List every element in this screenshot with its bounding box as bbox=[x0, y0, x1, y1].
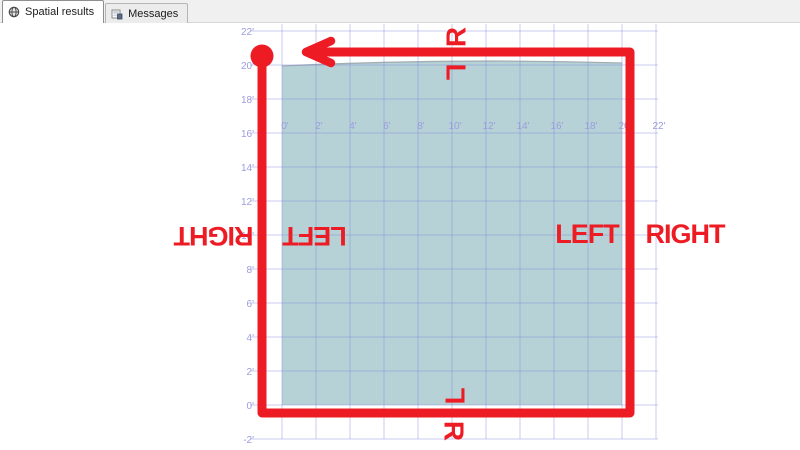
x-axis-tick-label: 2' bbox=[315, 121, 323, 132]
start-dot-icon bbox=[251, 45, 274, 68]
y-axis-tick-label: -2' bbox=[243, 435, 254, 445]
y-axis-tick-label: 6' bbox=[247, 299, 255, 310]
x-axis-tick-label: 6' bbox=[383, 121, 391, 132]
path-label-left-outside: RIGHT bbox=[173, 221, 254, 251]
x-axis-tick-label: 18' bbox=[584, 121, 597, 132]
tab-spatial-results[interactable]: Spatial results bbox=[2, 0, 104, 23]
x-axis-tick-label: 4' bbox=[349, 121, 357, 132]
path-label-top-inside: L bbox=[441, 63, 472, 80]
x-axis-tick-label: 8' bbox=[417, 121, 425, 132]
spatial-plot: 22' 20' 18' 16' 14' 12' 10' 8' 6' 4' 2' … bbox=[0, 23, 800, 445]
x-axis-tick-label: 16' bbox=[550, 121, 563, 132]
path-label-right-inside: LEFT bbox=[555, 219, 620, 249]
y-axis-tick-label: 0' bbox=[247, 401, 255, 412]
y-axis-tick-label: 18' bbox=[241, 95, 254, 106]
spatial-results-canvas: 22' 20' 18' 16' 14' 12' 10' 8' 6' 4' 2' … bbox=[0, 23, 800, 445]
x-axis-tick-label: 0' bbox=[281, 121, 289, 132]
y-axis-tick-label: 20' bbox=[241, 61, 254, 72]
path-label-right-outside: RIGHT bbox=[646, 219, 727, 249]
tab-label: Messages bbox=[128, 8, 178, 20]
messages-icon bbox=[111, 8, 123, 20]
y-axis-tick-label: 14' bbox=[241, 163, 254, 174]
x-axis-tick-label: 10' bbox=[448, 121, 461, 132]
y-axis-tick-label: 8' bbox=[247, 265, 255, 276]
globe-icon bbox=[8, 6, 20, 18]
path-label-left-inside: LEFT bbox=[282, 221, 347, 251]
path-label-bottom-inside: L bbox=[440, 387, 471, 404]
y-axis-tick-label: 16' bbox=[241, 129, 254, 140]
y-axis-tick-label: 22' bbox=[241, 27, 254, 38]
y-axis-tick-label: 2' bbox=[247, 367, 255, 378]
x-axis-tick-label: 12' bbox=[482, 121, 495, 132]
x-axis-tick-label: 22' bbox=[652, 121, 665, 132]
results-tab-bar: Spatial results Messages bbox=[0, 0, 800, 23]
path-label-bottom-outside: R bbox=[439, 421, 470, 441]
y-axis-tick-label: 4' bbox=[247, 333, 255, 344]
tab-messages[interactable]: Messages bbox=[105, 3, 188, 23]
y-axis-tick-label: 12' bbox=[241, 197, 254, 208]
tab-label: Spatial results bbox=[25, 6, 94, 18]
path-label-top-outside: R bbox=[441, 27, 472, 47]
x-axis-tick-label: 14' bbox=[516, 121, 529, 132]
